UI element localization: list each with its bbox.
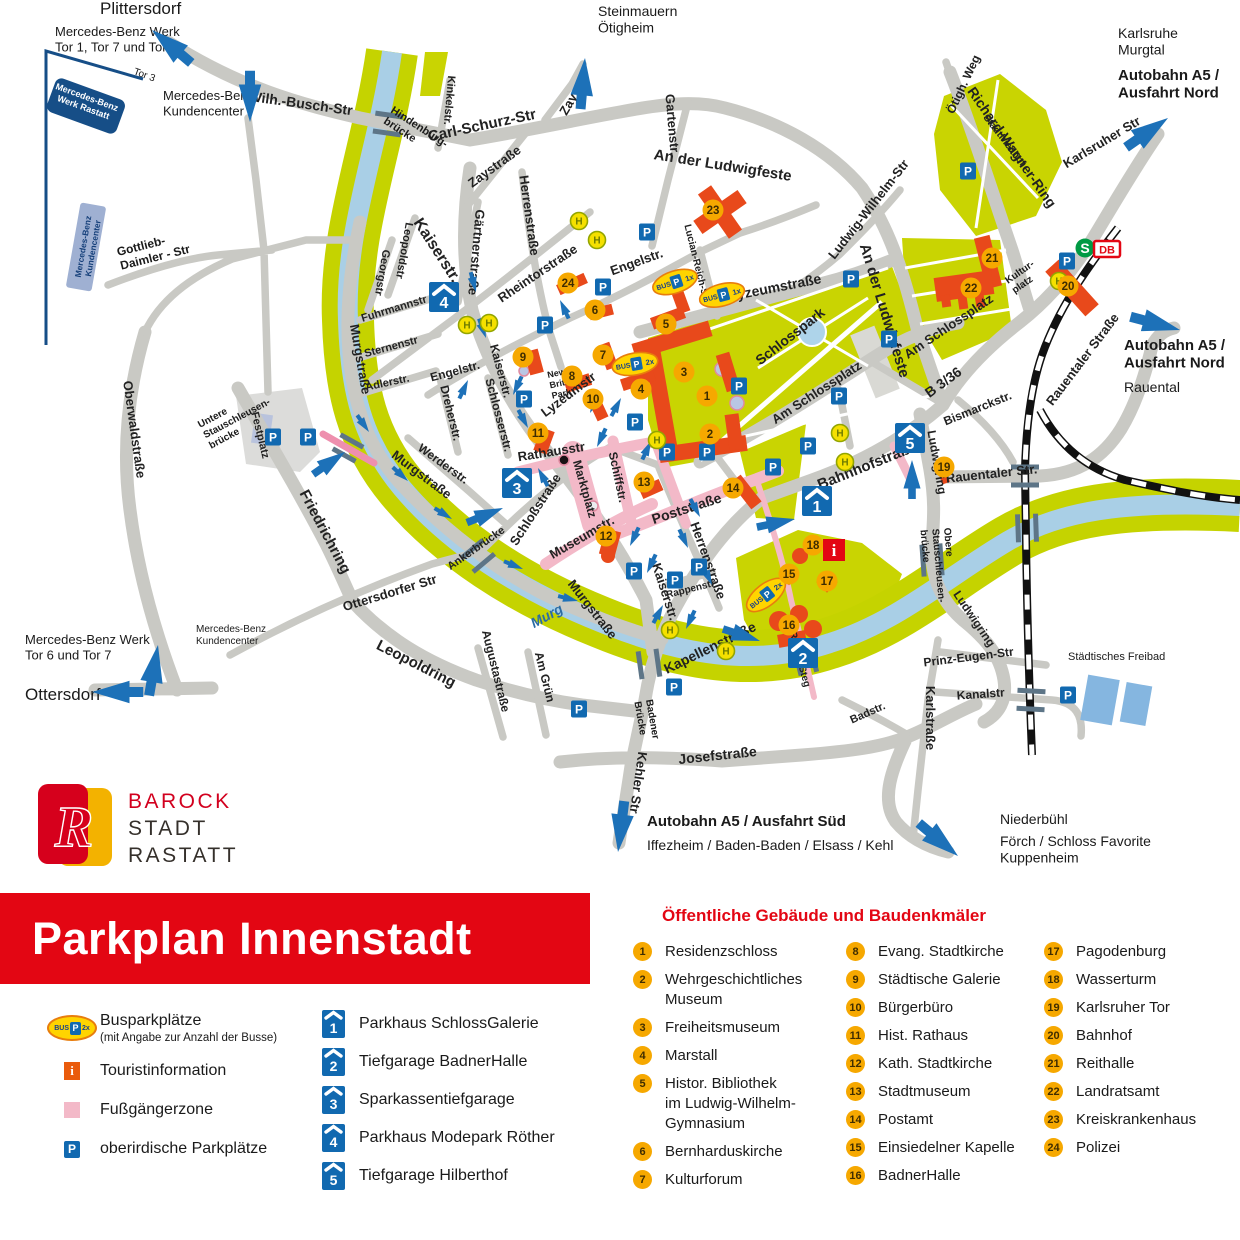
svg-text:H: H — [653, 436, 660, 447]
building-badge: 23 — [1044, 1110, 1063, 1129]
building-badge: 20 — [1044, 1026, 1063, 1045]
map-label: SteinmauernÖtigheim — [598, 3, 677, 36]
street-label: Wilh.-Busch-Str — [248, 88, 355, 119]
street-label: Kinkelstr. — [441, 75, 457, 125]
parking-icon: P — [627, 414, 643, 431]
landmark-badge: 7 — [593, 345, 614, 366]
parkhaus-legend-row: 4 Parkhaus Modepark Röther — [322, 1124, 555, 1152]
svg-text:5: 5 — [330, 1172, 338, 1188]
svg-text:14: 14 — [727, 483, 740, 495]
bus-stop-icon: H — [649, 432, 666, 449]
building-badge: 24 — [1044, 1138, 1063, 1157]
svg-text:P: P — [1064, 689, 1072, 703]
building-item: 17Pagodenburg — [1044, 942, 1240, 962]
parking-icon: P — [881, 331, 897, 348]
building-name-line: Karlsruher Tor — [1076, 998, 1240, 1018]
parking-icon: P — [667, 572, 683, 589]
svg-text:P: P — [695, 561, 703, 575]
landmark-badge: 5 — [656, 314, 677, 335]
parkhaus-icon: 3 — [322, 1086, 345, 1114]
svg-text:H: H — [836, 429, 843, 440]
building-name-line: Kath. Stadtkirche — [878, 1054, 1061, 1074]
svg-text:P: P — [703, 446, 711, 460]
bus-stop-icon: H — [459, 317, 476, 334]
building-name-line: BadnerHalle — [878, 1166, 1061, 1186]
bus-stop-icon: H — [662, 622, 679, 639]
parkhaus-icon: 1 — [322, 1010, 345, 1038]
map-label: Niederbühl — [1000, 811, 1068, 827]
landmark-badge: 14 — [723, 478, 744, 499]
buildings-legend-heading: Öffentliche Gebäude und Baudenkmäler — [662, 906, 986, 926]
parking-icon: P — [595, 279, 611, 296]
legend-row-p: Poberirdische Parkplätze — [44, 1140, 267, 1158]
svg-text:16: 16 — [783, 620, 796, 632]
building-badge: 18 — [1044, 970, 1063, 989]
parkhaus-marker: 4 — [429, 282, 459, 312]
svg-text:P: P — [630, 565, 638, 579]
parkhaus-label: Parkhaus Modepark Röther — [359, 1129, 555, 1147]
landmark-badge: 15 — [779, 564, 800, 585]
building-badge: 12 — [846, 1054, 865, 1073]
parking-icon: P — [691, 559, 707, 576]
svg-text:17: 17 — [821, 576, 834, 588]
svg-text:S: S — [1080, 240, 1089, 256]
building-item: 14Postamt — [846, 1110, 1061, 1130]
building-badge: 14 — [846, 1110, 865, 1129]
svg-text:1: 1 — [813, 499, 822, 516]
landmark-badge: 6 — [585, 300, 606, 321]
building-name-line: Museum — [665, 990, 848, 1010]
building-item: 13Stadtmuseum — [846, 1082, 1061, 1102]
parkhaus-legend-row: 2 Tiefgarage BadnerHalle — [322, 1048, 527, 1076]
street-label: Kaiserstr. — [410, 215, 464, 285]
legend-note: (mit Angabe zur Anzahl der Busse) — [100, 1032, 277, 1044]
map-label: Mercedes-BenzKundencenter — [196, 624, 266, 647]
landmark-badge: 13 — [634, 472, 655, 493]
building-item: 2WehrgeschichtlichesMuseum — [633, 970, 848, 1010]
svg-text:P: P — [631, 416, 639, 430]
building-item: 21Reithalle — [1044, 1054, 1240, 1074]
parking-icon: P — [537, 317, 553, 334]
svg-text:P: P — [835, 390, 843, 404]
building-name-line: Histor. Bibliothek — [665, 1074, 848, 1094]
map-label: Plittersdorf — [100, 0, 182, 18]
bus-stop-icon: H — [832, 425, 849, 442]
building-item: 19Karlsruher Tor — [1044, 998, 1240, 1018]
svg-text:15: 15 — [783, 569, 796, 581]
map-label: Kultur-platz — [1003, 259, 1043, 296]
parking-icon: P — [639, 224, 655, 241]
tourist-info-icon: i — [44, 1062, 100, 1080]
landmark-badge: 19 — [934, 457, 955, 478]
building-name-line: Bernharduskirche — [665, 1142, 848, 1162]
map-label: Ottersdorf — [25, 685, 101, 704]
landmark-badge: 8 — [562, 366, 583, 387]
parkhaus-label: Parkhaus SchlossGalerie — [359, 1015, 539, 1033]
building-badge: 13 — [846, 1082, 865, 1101]
building-badge: 22 — [1044, 1082, 1063, 1101]
svg-text:11: 11 — [532, 428, 545, 440]
svg-text:P: P — [847, 273, 855, 287]
building-item: 4Marstall — [633, 1046, 848, 1066]
title-banner: Parkplan Innenstadt — [0, 893, 590, 984]
building-name-line: Reithalle — [1076, 1054, 1240, 1074]
building-item: 12Kath. Stadtkirche — [846, 1054, 1061, 1074]
parking-icon: P — [960, 163, 976, 180]
building-item: 9Städtische Galerie — [846, 970, 1061, 990]
landmark-badge: 9 — [513, 347, 534, 368]
building-badge: 19 — [1044, 998, 1063, 1017]
svg-text:3: 3 — [513, 481, 522, 498]
svg-text:P: P — [670, 681, 678, 695]
svg-text:1: 1 — [330, 1020, 338, 1036]
parking-icon: P — [800, 438, 816, 455]
map-label: Tor 3 — [132, 66, 157, 84]
building-badge: 8 — [846, 942, 865, 961]
parkhaus-marker: 5 — [895, 423, 925, 453]
parking-icon: P — [831, 388, 847, 405]
building-item: 6Bernharduskirche — [633, 1142, 848, 1162]
legend-row-zone: Fußgängerzone — [44, 1101, 213, 1119]
bus-stop-icon: H — [481, 315, 498, 332]
building-name-line: Städtische Galerie — [878, 970, 1061, 990]
parking-icon: P — [666, 679, 682, 696]
map-label: Mercedes-Benz WerkTor 6 und Tor 7 — [25, 632, 150, 662]
landmark-badge: 23 — [703, 200, 724, 221]
svg-text:18: 18 — [807, 540, 820, 552]
building-name-line: Stadtmuseum — [878, 1082, 1061, 1102]
landmark-badge: 11 — [528, 423, 549, 444]
svg-text:P: P — [885, 333, 893, 347]
parkplan-poster: Wilh.-Busch-StrCarl-Schurz-StrZaystr.Zay… — [0, 0, 1240, 1240]
parkhaus-label: Tiefgarage Hilberthof — [359, 1167, 508, 1185]
parkhaus-label: Sparkassentiefgarage — [359, 1091, 515, 1109]
landmark-badge: 12 — [596, 526, 617, 547]
svg-text:P: P — [575, 703, 583, 717]
landmark-badge: 4 — [631, 379, 652, 400]
building-item: 1Residenzschloss — [633, 942, 848, 962]
building-item: 11Hist. Rathaus — [846, 1026, 1061, 1046]
bus-parking-icon: BUSP2x — [44, 1015, 100, 1041]
parking-icon: P — [516, 391, 532, 408]
map-label: Iffezheim / Baden-Baden / Elsass / Kehl — [647, 837, 893, 853]
svg-text:4: 4 — [330, 1134, 338, 1150]
svg-text:19: 19 — [938, 462, 951, 474]
svg-text:1: 1 — [704, 391, 711, 403]
landmark-badge: 10 — [583, 389, 604, 410]
svg-text:P: P — [671, 574, 679, 588]
building-badge: 15 — [846, 1138, 865, 1157]
page-title: Parkplan Innenstadt — [32, 913, 472, 965]
parking-icon: P — [699, 444, 715, 461]
legend-label: Fußgängerzone — [100, 1101, 213, 1119]
svg-text:20: 20 — [1062, 281, 1075, 293]
building-badge: 11 — [846, 1026, 865, 1045]
svg-text:7: 7 — [600, 350, 606, 362]
logo-emblem: R — [38, 784, 114, 870]
building-badge: 3 — [633, 1018, 652, 1037]
building-item: 20Bahnhof — [1044, 1026, 1240, 1046]
svg-text:12: 12 — [600, 531, 613, 543]
building-name-line: Kulturforum — [665, 1170, 848, 1190]
building-item: 7Kulturforum — [633, 1170, 848, 1190]
svg-text:8: 8 — [569, 371, 576, 383]
map-label: Autobahn A5 / Ausfahrt Süd — [647, 813, 846, 830]
bus-stop-icon: H — [837, 454, 854, 471]
svg-text:P: P — [964, 165, 972, 179]
svg-text:2: 2 — [707, 429, 713, 441]
building-name-line: Bahnhof — [1076, 1026, 1240, 1046]
svg-text:H: H — [841, 458, 848, 469]
building-item: 23Kreiskrankenhaus — [1044, 1110, 1240, 1130]
street-label: Karlstraße — [923, 686, 938, 750]
building-badge: 6 — [633, 1142, 652, 1161]
parking-icon: P — [265, 429, 281, 446]
building-name-line: im Ludwig-Wilhelm- — [665, 1094, 848, 1114]
map-label: Autobahn A5 /Ausfahrt Nord — [1124, 337, 1226, 372]
svg-text:24: 24 — [562, 278, 575, 290]
building-item: 3Freiheitsmuseum — [633, 1018, 848, 1038]
parkhaus-legend-row: 5 Tiefgarage Hilberthof — [322, 1162, 508, 1190]
building-name-line: Pagodenburg — [1076, 942, 1240, 962]
building-name-line: Hist. Rathaus — [878, 1026, 1061, 1046]
svg-text:i: i — [832, 541, 837, 560]
legend-row-bus-oval: BUSP2xBusparkplätze(mit Angabe zur Anzah… — [44, 1012, 277, 1044]
svg-text:P: P — [769, 461, 777, 475]
building-name-line: Postamt — [878, 1110, 1061, 1130]
parking-icon: P — [731, 378, 747, 395]
logo-line-1: BAROCK — [128, 788, 238, 815]
landmark-badge: 3 — [674, 362, 695, 383]
building-name-line: Einsiedelner Kapelle — [878, 1138, 1061, 1158]
buildings-column: 8Evang. Stadtkirche9Städtische Galerie10… — [846, 942, 1061, 1194]
parking-icon: P — [1060, 687, 1076, 704]
svg-text:R: R — [54, 794, 94, 859]
building-item: 10Bürgerbüro — [846, 998, 1061, 1018]
svg-text:2: 2 — [330, 1058, 338, 1074]
map-label: Förch / Schloss FavoriteKuppenheim — [1000, 833, 1151, 866]
svg-text:DB: DB — [1099, 245, 1115, 257]
svg-text:5: 5 — [663, 319, 670, 331]
street-label: An der Ludwigfeste — [653, 146, 793, 185]
map-label: Mercedes-BenzKundencenter — [163, 88, 254, 118]
building-badge: 10 — [846, 998, 865, 1017]
building-badge: 1 — [633, 942, 652, 961]
landmark-badge: 1 — [697, 386, 718, 407]
svg-text:P: P — [304, 431, 312, 445]
oneway-arrow — [607, 396, 625, 418]
building-badge: 21 — [1044, 1054, 1063, 1073]
building-item: 8Evang. Stadtkirche — [846, 942, 1061, 962]
bus-stop-icon: H — [718, 643, 735, 660]
oneway-arrow — [455, 378, 472, 400]
parking-icon: P — [843, 271, 859, 288]
db-icon: DB — [1094, 241, 1120, 257]
street-label: Herrenstraße — [516, 174, 542, 256]
building-badge: 17 — [1044, 942, 1063, 961]
landmark-badge: 24 — [558, 273, 579, 294]
map-label: Rauental — [1124, 379, 1180, 395]
svg-text:21: 21 — [986, 253, 999, 265]
pedestrian-zone-icon — [44, 1102, 100, 1118]
sbahn-icon: S — [1076, 239, 1095, 258]
svg-text:6: 6 — [592, 305, 598, 317]
legend-label: oberirdische Parkplätze — [100, 1140, 267, 1158]
parking-icon: P — [765, 459, 781, 476]
parking-icon: P — [300, 429, 316, 446]
landmark-badge: 17 — [817, 571, 838, 592]
parkhaus-icon: 5 — [322, 1162, 345, 1190]
parking-icon: P — [44, 1141, 100, 1158]
landmark-badge: 20 — [1058, 276, 1079, 297]
city-logo: R BAROCK STADT RASTATT — [38, 784, 238, 870]
svg-text:13: 13 — [638, 477, 651, 489]
svg-text:H: H — [463, 321, 470, 332]
svg-text:10: 10 — [587, 394, 600, 406]
svg-text:5: 5 — [906, 436, 915, 453]
svg-text:P: P — [541, 319, 549, 333]
legend-label: Busparkplätze — [100, 1012, 277, 1030]
parking-icon: P — [1059, 253, 1075, 270]
building-name-line: Wasserturm — [1076, 970, 1240, 990]
svg-text:P: P — [735, 380, 743, 394]
svg-text:H: H — [575, 217, 582, 228]
parking-icon: P — [626, 563, 642, 580]
logo-text: BAROCK STADT RASTATT — [128, 784, 238, 869]
parkhaus-legend-row: 1 Parkhaus SchlossGalerie — [322, 1010, 539, 1038]
svg-text:H: H — [593, 236, 600, 247]
building-name-line: Gymnasium — [665, 1114, 848, 1134]
svg-text:23: 23 — [707, 205, 720, 217]
building-name-line: Evang. Stadtkirche — [878, 942, 1061, 962]
landmark-badge: 21 — [982, 248, 1003, 269]
svg-text:P: P — [1063, 255, 1071, 269]
legend-row-info: iTouristinformation — [44, 1062, 226, 1080]
building-badge: 16 — [846, 1166, 865, 1185]
building-badge: 4 — [633, 1046, 652, 1065]
parkhaus-icon: 4 — [322, 1124, 345, 1152]
svg-text:9: 9 — [520, 352, 526, 364]
parkhaus-marker: 2 — [788, 638, 818, 668]
landmark-badge: 16 — [779, 615, 800, 636]
svg-text:P: P — [269, 431, 277, 445]
parking-icon: P — [571, 701, 587, 718]
svg-text:4: 4 — [638, 384, 645, 396]
building-badge: 9 — [846, 970, 865, 989]
building-item: 22Landratsamt — [1044, 1082, 1240, 1102]
building-name-line: Landratsamt — [1076, 1082, 1240, 1102]
svg-text:P: P — [663, 446, 671, 460]
buildings-column: 17Pagodenburg18Wasserturm19Karlsruher To… — [1044, 942, 1240, 1166]
street-label: Friedrichring — [296, 487, 354, 577]
freibad-buildings — [1080, 675, 1152, 726]
landmark-badge: 22 — [961, 278, 982, 299]
map-label: Autobahn A5 /Ausfahrt Nord — [1118, 67, 1220, 102]
building-name-line: Wehrgeschichtliches — [665, 970, 848, 990]
building-badge: 2 — [633, 970, 652, 989]
svg-text:P: P — [643, 226, 651, 240]
logo-line-3: RASTATT — [128, 842, 238, 869]
svg-text:P: P — [804, 440, 812, 454]
building-name-line: Freiheitsmuseum — [665, 1018, 848, 1038]
building-name-line: Polizei — [1076, 1138, 1240, 1158]
building-item: 18Wasserturm — [1044, 970, 1240, 990]
svg-text:H: H — [722, 647, 729, 658]
building-badge: 7 — [633, 1170, 652, 1189]
building-name-line: Residenzschloss — [665, 942, 848, 962]
tourist-info-icon: i — [823, 539, 845, 561]
svg-text:2: 2 — [799, 651, 808, 668]
bus-stop-icon: H — [571, 213, 588, 230]
building-badge: 5 — [633, 1074, 652, 1093]
bus-stop-icon: H — [589, 232, 606, 249]
legend-label: Touristinformation — [100, 1062, 226, 1080]
building-item: 16BadnerHalle — [846, 1166, 1061, 1186]
parkhaus-label: Tiefgarage BadnerHalle — [359, 1053, 527, 1071]
building-name-line: Bürgerbüro — [878, 998, 1061, 1018]
map-label: Städtisches Freibad — [1068, 651, 1165, 663]
parkhaus-marker: 1 — [802, 486, 832, 516]
building-name-line: Kreiskrankenhaus — [1076, 1110, 1240, 1130]
landmark-badge: 18 — [803, 535, 824, 556]
svg-text:22: 22 — [965, 283, 978, 295]
building-item: 24Polizei — [1044, 1138, 1240, 1158]
building-item: 15Einsiedelner Kapelle — [846, 1138, 1061, 1158]
parkhaus-icon: 2 — [322, 1048, 345, 1076]
logo-line-2: STADT — [128, 815, 238, 842]
svg-text:H: H — [666, 626, 673, 637]
parkhaus-marker: 3 — [502, 468, 532, 498]
map-label: KarlsruheMurgtal — [1118, 25, 1178, 58]
building-item: 5Histor. Bibliothekim Ludwig-Wilhelm-Gym… — [633, 1074, 848, 1134]
buildings-column: 1Residenzschloss2WehrgeschichtlichesMuse… — [633, 942, 848, 1198]
landmark-badge: 2 — [700, 424, 721, 445]
svg-text:3: 3 — [330, 1096, 338, 1112]
parkhaus-legend-row: 3 Sparkassentiefgarage — [322, 1086, 515, 1114]
svg-text:H: H — [485, 319, 492, 330]
svg-text:3: 3 — [681, 367, 687, 379]
svg-text:P: P — [520, 393, 528, 407]
street-label: Leopoldstr — [393, 221, 415, 280]
building-name-line: Marstall — [665, 1046, 848, 1066]
svg-text:P: P — [599, 281, 607, 295]
svg-text:4: 4 — [440, 295, 449, 312]
